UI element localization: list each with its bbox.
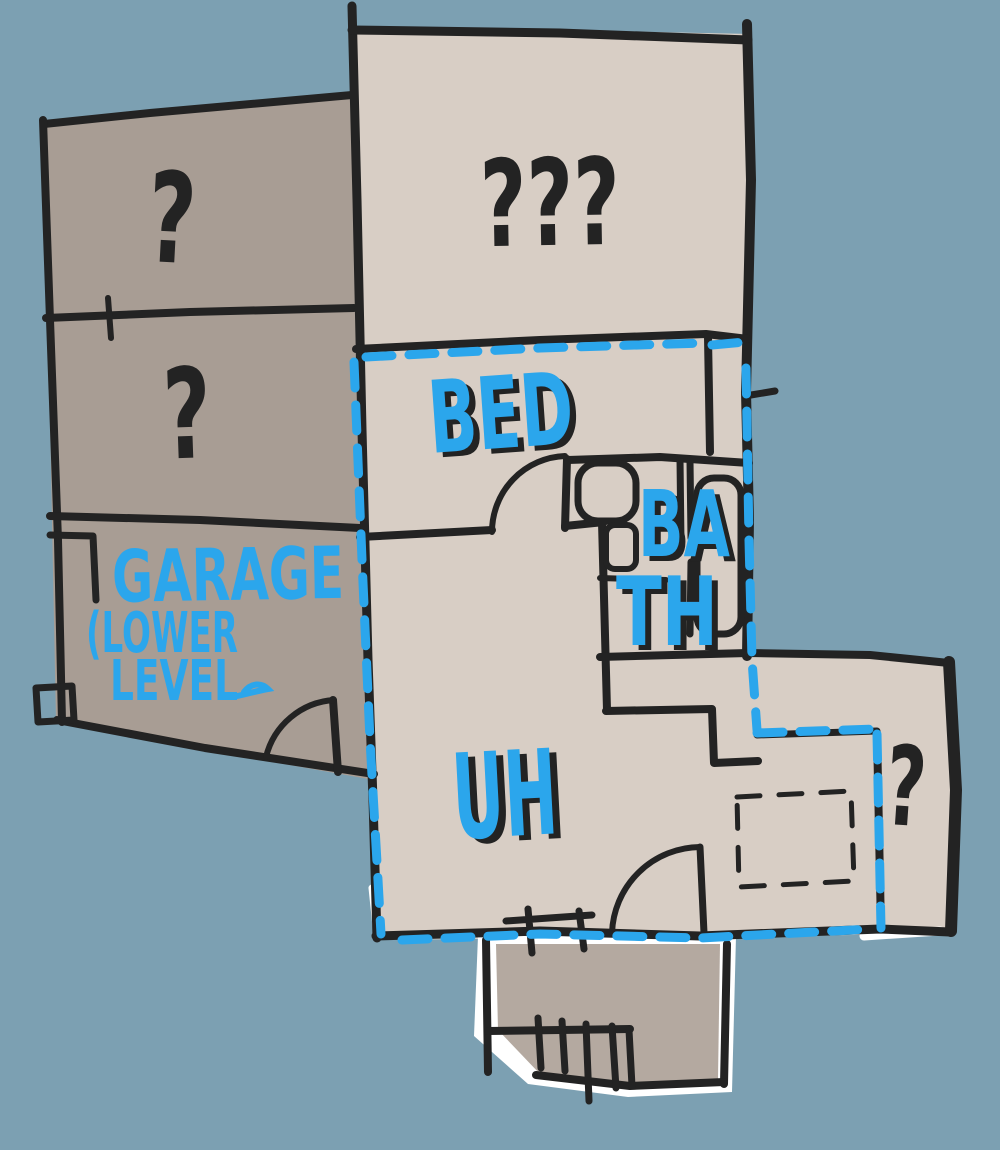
label-bathroom-line2: TH xyxy=(616,558,718,668)
floorplan-canvas: ? ? ??? ? BED BED BA BA TH TH UH UH GARA… xyxy=(0,0,1000,1150)
garage-door-post xyxy=(333,700,338,772)
lower-room-left-wall xyxy=(486,940,488,1072)
label-mid-left-room: ? xyxy=(161,342,214,489)
extension-right-wall xyxy=(949,662,956,931)
floorplan-sketch: ? ? ??? ? BED BED BA BA TH TH UH UH GARA… xyxy=(0,0,1000,1150)
lower-room-right-wall xyxy=(724,944,727,1084)
label-garage-line3: LEVEL xyxy=(110,649,238,714)
closet-wall xyxy=(708,337,710,452)
label-hall: UH xyxy=(449,723,561,866)
marker-dash-mid-h xyxy=(757,729,876,733)
label-top-room: ??? xyxy=(479,134,621,275)
label-upper-left-room: ? xyxy=(144,146,200,293)
label-bedroom: BED xyxy=(424,350,577,477)
divider-tick xyxy=(108,298,111,338)
hall-door-leaf xyxy=(700,847,704,933)
